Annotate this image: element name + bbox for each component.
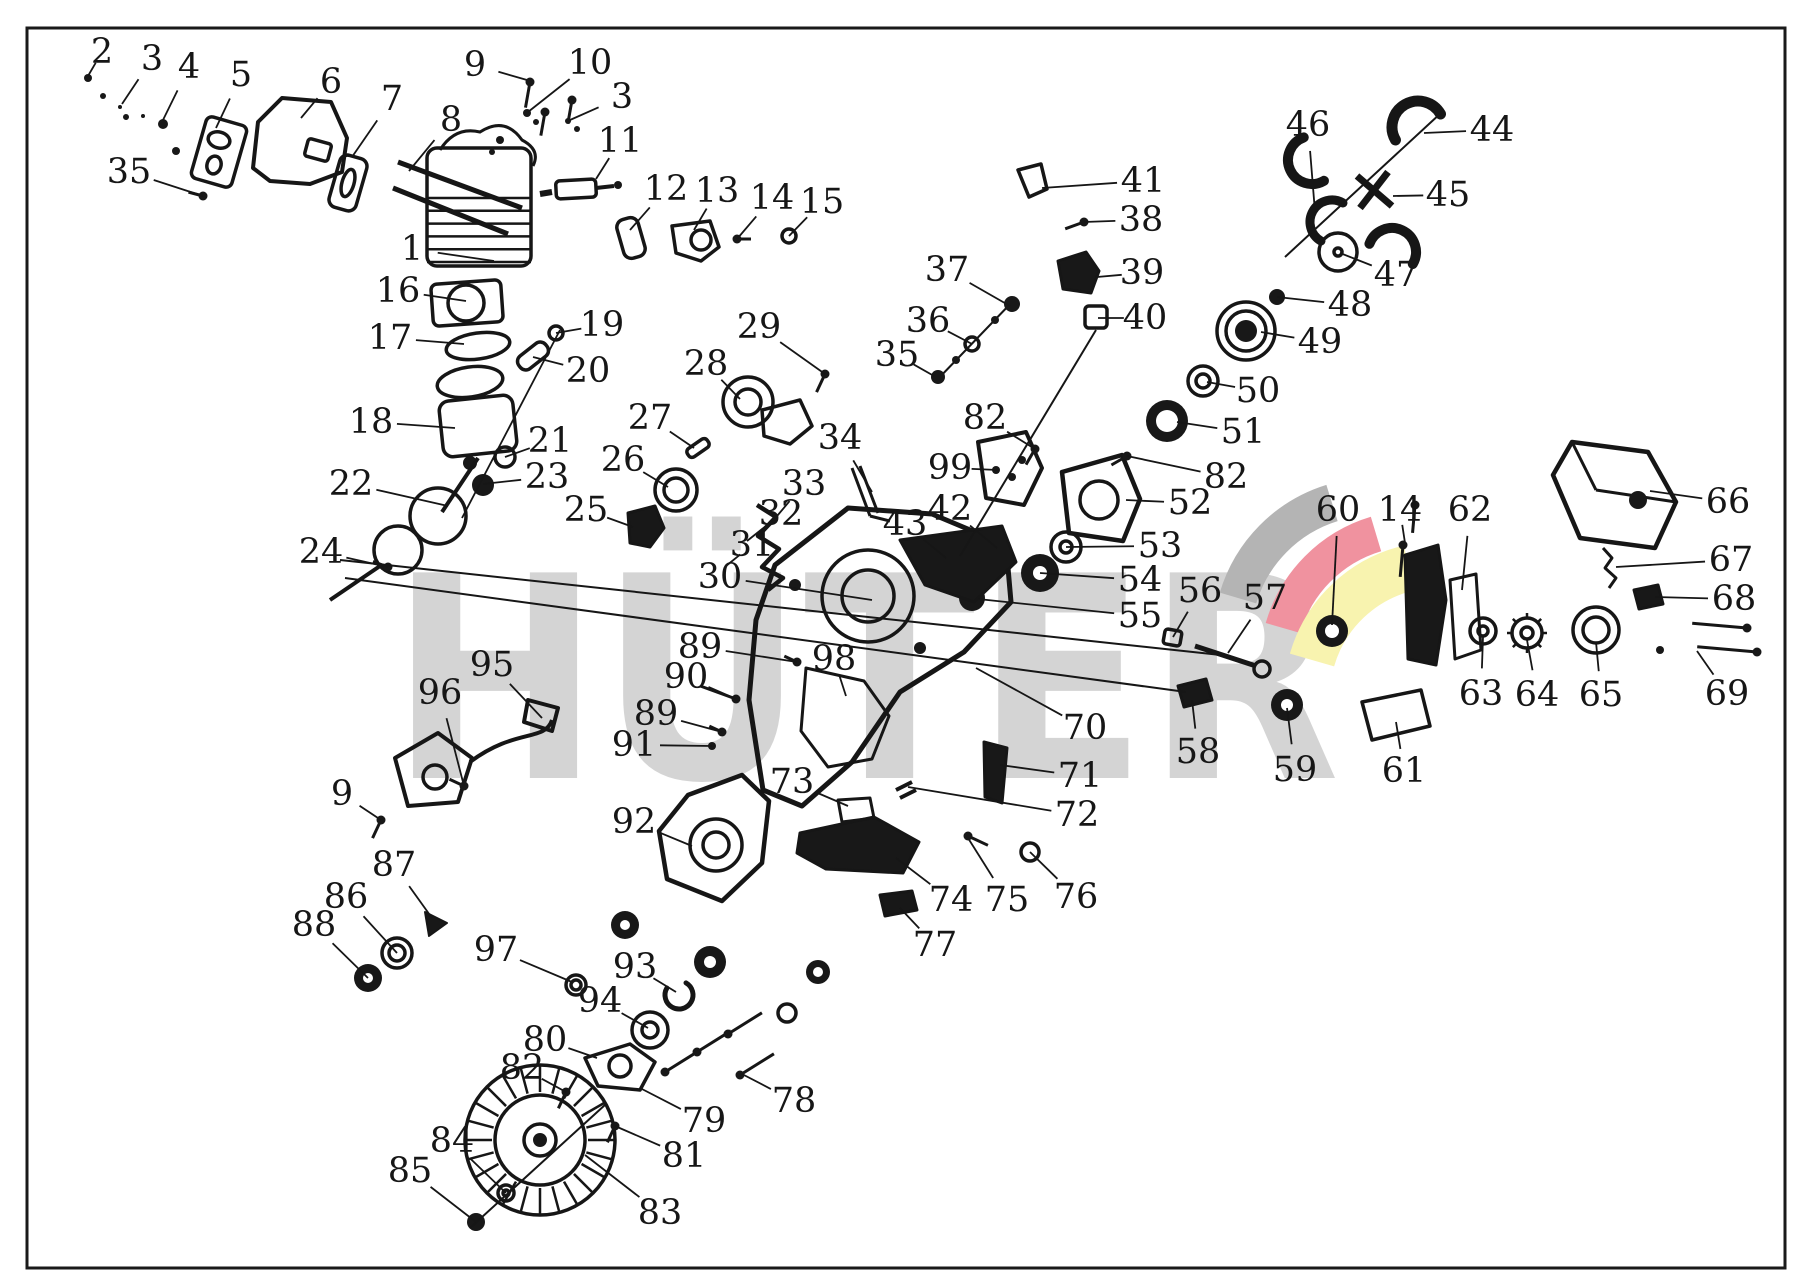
part-art [609, 1055, 631, 1077]
part-art [1080, 481, 1118, 519]
leader-line [154, 180, 203, 196]
callout-label-39: 39 [1120, 253, 1165, 293]
callout-label-17: 17 [368, 318, 413, 358]
callout-label-60: 60 [1316, 490, 1361, 530]
callout-label-11: 11 [598, 121, 643, 161]
callout-label-96: 96 [418, 673, 463, 713]
part-art [1362, 690, 1430, 740]
callout-label-56: 56 [1178, 571, 1223, 611]
leader-line [660, 745, 712, 746]
leader-line [970, 283, 1010, 306]
part-art [574, 126, 580, 132]
part-art [914, 642, 926, 654]
callout-label-58: 58 [1176, 732, 1221, 772]
callout-label-14: 14 [750, 178, 795, 218]
part-art [158, 119, 168, 129]
callout-label-42: 42 [928, 489, 973, 529]
screw-icon [526, 78, 535, 87]
leader-line [622, 1013, 648, 1028]
callout-label-79: 79 [682, 1101, 727, 1141]
watermark-brand-text: HÜTER [390, 514, 1340, 845]
callout-label-2: 2 [91, 32, 113, 72]
parts-diagram-page: HÜTER23456789103111213141511617181920212… [0, 0, 1809, 1283]
callout-label-3: 3 [611, 77, 633, 117]
callout-label-29: 29 [737, 307, 782, 347]
leader-line [1650, 491, 1702, 498]
callout-label-66: 66 [1706, 482, 1751, 522]
leader-line [520, 960, 572, 982]
callout-label-25: 25 [564, 490, 609, 530]
leader-line [742, 1074, 771, 1089]
callout-label-51: 51 [1221, 412, 1266, 452]
callout-label-26: 26 [601, 440, 646, 480]
part-art [100, 93, 106, 99]
callout-label-47: 47 [1374, 255, 1419, 295]
callout-label-88: 88 [292, 905, 337, 945]
callout-label-24: 24 [299, 532, 344, 572]
callout-label-68: 68 [1712, 579, 1757, 619]
callout-label-72: 72 [1055, 795, 1100, 835]
part-art [190, 115, 248, 188]
part-art [398, 162, 522, 208]
leader-line [122, 79, 139, 104]
part-art [1521, 627, 1533, 639]
leader-line [640, 1088, 681, 1109]
callout-label-21: 21 [528, 421, 573, 461]
callout-label-35: 35 [107, 152, 152, 192]
part-art [1325, 624, 1339, 638]
leader-line [737, 216, 756, 239]
callout-label-20: 20 [566, 351, 611, 391]
callout-label-92: 92 [612, 802, 657, 842]
part-art [586, 1121, 612, 1128]
callout-label-55: 55 [1118, 596, 1163, 636]
callout-label-43: 43 [883, 504, 928, 544]
part-art [704, 956, 716, 968]
leader-line [364, 916, 397, 953]
part-art [521, 1186, 528, 1212]
leader-line [216, 99, 230, 128]
leader-line [615, 1126, 660, 1146]
callout-label-41: 41 [1121, 161, 1166, 201]
part-art [1538, 644, 1542, 648]
callout-label-76: 76 [1054, 877, 1099, 917]
part-art [552, 1186, 559, 1212]
leader-line [1482, 637, 1483, 668]
callout-label-9: 9 [331, 774, 353, 814]
callout-label-8: 8 [440, 100, 462, 140]
callout-label-10: 10 [568, 43, 613, 83]
callout-label-4: 4 [178, 47, 200, 87]
part-art [978, 432, 1042, 505]
screw-icon [740, 1054, 774, 1075]
callout-label-22: 22 [329, 464, 374, 504]
callout-label-36: 36 [906, 301, 951, 341]
screw-icon [1753, 648, 1762, 657]
part-art [723, 377, 773, 427]
leader-line [1393, 195, 1423, 196]
leader-line [498, 72, 527, 80]
part-art [574, 1174, 593, 1193]
part-art [880, 891, 917, 916]
part-art [304, 138, 332, 162]
part-art [931, 370, 945, 384]
callout-label-15: 15 [800, 182, 845, 222]
callout-label-73: 73 [770, 762, 815, 802]
leader-line [972, 469, 998, 470]
part-art [533, 119, 539, 125]
screw-icon [661, 1068, 670, 1077]
leader-line [1527, 640, 1533, 670]
part-art [991, 316, 999, 324]
callout-label-65: 65 [1579, 675, 1624, 715]
leader-line [694, 209, 707, 230]
part-art [496, 136, 504, 144]
callout-label-27: 27 [628, 398, 673, 438]
leader-line [409, 886, 432, 918]
leader-line [670, 432, 694, 449]
callout-label-61: 61 [1382, 751, 1427, 791]
callout-label-63: 63 [1459, 674, 1504, 714]
callout-label-1: 1 [401, 229, 423, 269]
callout-label-13: 13 [695, 171, 740, 211]
part-art [533, 1133, 547, 1147]
part-art [1538, 619, 1542, 623]
part-art [1235, 320, 1257, 342]
part-art [540, 192, 552, 194]
leader-line [1462, 536, 1467, 590]
screw-icon [724, 1030, 733, 1039]
part-art [582, 1164, 605, 1178]
callout-label-6: 6 [320, 62, 342, 102]
callout-label-69: 69 [1705, 674, 1750, 714]
callout-label-18: 18 [349, 402, 394, 442]
leader-line [438, 253, 494, 261]
screw-icon [728, 1013, 762, 1034]
callout-label-54: 54 [1118, 560, 1163, 600]
part-art [984, 742, 1007, 803]
part-art [1603, 548, 1616, 588]
callout-label-84: 84 [430, 1121, 475, 1161]
callout-label-12: 12 [644, 169, 689, 209]
part-art [632, 1012, 668, 1048]
part-art [585, 1044, 655, 1090]
leader-line [1697, 651, 1714, 675]
part-art [1478, 626, 1488, 636]
callout-label-99: 99 [928, 448, 973, 488]
part-art [615, 216, 647, 261]
callout-label-78: 78 [772, 1081, 817, 1121]
callout-label-94: 94 [578, 981, 623, 1021]
leader-line [1127, 456, 1201, 472]
callout-label-83: 83 [638, 1193, 683, 1233]
part-art [1018, 164, 1047, 197]
leader-line [1097, 275, 1122, 277]
callout-label-67: 67 [1709, 540, 1754, 580]
leader-line [360, 806, 381, 820]
callout-label-23: 23 [525, 457, 570, 497]
callout-label-46: 46 [1286, 105, 1331, 145]
part-art [172, 147, 180, 155]
leader-line [333, 943, 368, 978]
part-art [552, 1068, 559, 1094]
part-art [642, 1022, 658, 1038]
callout-label-35: 35 [875, 335, 920, 375]
callout-label-85: 85 [388, 1151, 433, 1191]
exploded-parts-diagram: HÜTER23456789103111213141511617181920212… [0, 0, 1809, 1283]
part-art [860, 466, 878, 513]
callout-label-45: 45 [1426, 175, 1471, 215]
screw-icon [1399, 541, 1408, 550]
leader-line [416, 340, 464, 344]
part-art [1058, 252, 1099, 293]
callout-label-59: 59 [1273, 750, 1318, 790]
part-art [1405, 545, 1446, 665]
leader-line [431, 1187, 476, 1222]
part-art [564, 1182, 578, 1205]
part-art [1656, 646, 1664, 654]
part-art [1196, 374, 1210, 388]
part-art [813, 967, 823, 977]
part-art [1629, 491, 1647, 509]
leader-line [570, 107, 599, 120]
part-art [141, 114, 145, 118]
callout-label-19: 19 [580, 305, 625, 345]
part-art [1553, 442, 1676, 548]
part-art [205, 154, 223, 175]
part-art [574, 1087, 593, 1106]
callout-label-77: 77 [913, 925, 958, 965]
leader-line [1066, 546, 1134, 547]
part-art [778, 1004, 796, 1022]
callout-label-70: 70 [1063, 708, 1108, 748]
callout-label-49: 49 [1298, 322, 1343, 362]
callout-label-50: 50 [1236, 371, 1281, 411]
callout-label-33: 33 [782, 464, 827, 504]
callout-label-62: 62 [1448, 490, 1493, 530]
part-art [425, 912, 447, 936]
leader-line [596, 158, 609, 179]
leader-line [528, 79, 570, 112]
part-art [448, 285, 484, 321]
part-art [1583, 617, 1609, 643]
part-art [596, 186, 614, 188]
part-art [620, 920, 630, 930]
part-art [1156, 410, 1178, 432]
part-art [475, 1103, 498, 1117]
leader-line [1424, 131, 1466, 133]
callout-label-74: 74 [929, 880, 974, 920]
callout-label-98: 98 [812, 639, 857, 679]
part-art [655, 469, 697, 511]
callout-label-82: 82 [500, 1048, 545, 1088]
part-art [664, 478, 688, 502]
part-art [327, 153, 369, 213]
part-art [1178, 679, 1212, 707]
callout-label-91: 91 [612, 725, 657, 765]
part-art [445, 329, 512, 364]
callout-label-44: 44 [1470, 110, 1515, 150]
part-art [123, 114, 129, 120]
callout-label-48: 48 [1328, 285, 1373, 325]
callout-label-14: 14 [1378, 490, 1423, 530]
callout-label-9: 9 [464, 45, 486, 85]
leader-line [352, 120, 377, 157]
callout-label-40: 40 [1123, 298, 1168, 338]
callout-label-71: 71 [1058, 756, 1103, 796]
callout-label-75: 75 [985, 880, 1030, 920]
leader-line [568, 1048, 597, 1058]
part-art [1334, 248, 1342, 256]
part-art [1572, 442, 1596, 490]
part-art [1513, 644, 1517, 648]
leader-line [1596, 642, 1599, 671]
screw-icon [1743, 624, 1752, 633]
leader-line [1030, 852, 1057, 879]
callout-label-81: 81 [662, 1136, 707, 1176]
part-art [1513, 619, 1517, 623]
leader-line [397, 424, 455, 428]
part-art [1188, 366, 1218, 396]
callout-label-37: 37 [925, 250, 970, 290]
leader-line [1126, 500, 1164, 502]
part-art [762, 400, 812, 444]
callout-label-82: 82 [1204, 457, 1249, 497]
leader-line [1084, 221, 1115, 222]
leader-line [780, 342, 825, 374]
part-art [556, 179, 597, 199]
part-art [735, 389, 761, 415]
part-art [1450, 574, 1481, 659]
screw-icon [1697, 647, 1757, 652]
callout-label-87: 87 [372, 845, 417, 885]
callout-label-95: 95 [470, 645, 515, 685]
callout-label-7: 7 [381, 79, 403, 119]
part-art [565, 118, 571, 124]
part-art [118, 105, 122, 109]
callout-label-97: 97 [474, 930, 519, 970]
part-art [489, 149, 495, 155]
leader-line [1042, 183, 1117, 188]
part-art [665, 983, 693, 1009]
part-art [1085, 306, 1107, 328]
callout-label-38: 38 [1119, 200, 1164, 240]
callout-label-64: 64 [1515, 675, 1560, 715]
screw-icon [568, 96, 577, 105]
part-art [691, 230, 711, 250]
part-art [952, 356, 960, 364]
screw-icon [693, 1048, 702, 1057]
callout-label-57: 57 [1243, 578, 1288, 618]
callout-label-28: 28 [684, 344, 729, 384]
part-art [614, 181, 622, 189]
callout-label-16: 16 [376, 271, 421, 311]
callout-label-3: 3 [141, 39, 163, 79]
leader-line [1207, 382, 1235, 387]
leader-line [409, 140, 434, 171]
part-art [253, 98, 347, 184]
part-art [487, 1087, 506, 1106]
callout-label-5: 5 [230, 55, 252, 95]
callout-label-34: 34 [818, 418, 863, 458]
callout-label-90: 90 [664, 657, 709, 697]
leader-line [1616, 562, 1705, 567]
screw-icon [541, 108, 550, 117]
part-art [685, 437, 710, 459]
screw-icon [1692, 623, 1747, 628]
callout-label-82: 82 [963, 398, 1008, 438]
part-art [206, 129, 231, 150]
leader-line [163, 90, 178, 120]
